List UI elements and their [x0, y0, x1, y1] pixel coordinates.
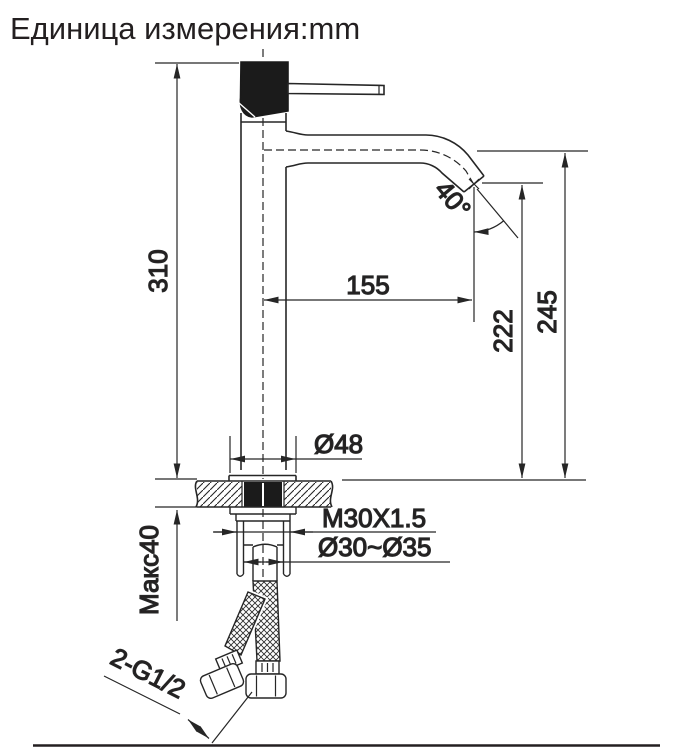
dim-total-height-label: 310 [143, 249, 173, 292]
dim-mounting-thread-label: M30X1.5 [322, 503, 426, 533]
dim-hose-connections-label: 2-G1/2 [106, 642, 190, 705]
technical-drawing-page: Единица измерения:mm [0, 0, 684, 749]
hose-right-nut [246, 674, 286, 698]
dim-base-diameter-label: Ø48 [314, 429, 363, 459]
hose-right-ferrule [256, 661, 279, 674]
handle-head [240, 62, 288, 117]
supply-hoses [199, 581, 286, 700]
dim-outlet-height-label: 222 [488, 309, 518, 352]
spout-centerline [264, 150, 473, 183]
faucet-dimension-drawing: Единица измерения:mm [0, 0, 684, 749]
drawing-title: Единица измерения:mm [10, 11, 360, 46]
dim-spout-top-height-label: 245 [532, 290, 562, 333]
handle-lever [288, 84, 384, 95]
dim-spout-reach-label: 155 [346, 270, 389, 300]
faucet-body [195, 49, 484, 700]
dim-max-deck-thickness-label: Макс40 [134, 525, 164, 615]
deck-section [195, 481, 332, 507]
hose-left-nut [199, 662, 245, 700]
dim-outlet-angle-label: 40° [429, 175, 477, 224]
dim-hole-diameter-label: Ø30~Ø35 [318, 532, 431, 562]
dim-outlet-angle [474, 187, 518, 322]
dimensions: 310 155 222 245 40° [104, 63, 588, 743]
